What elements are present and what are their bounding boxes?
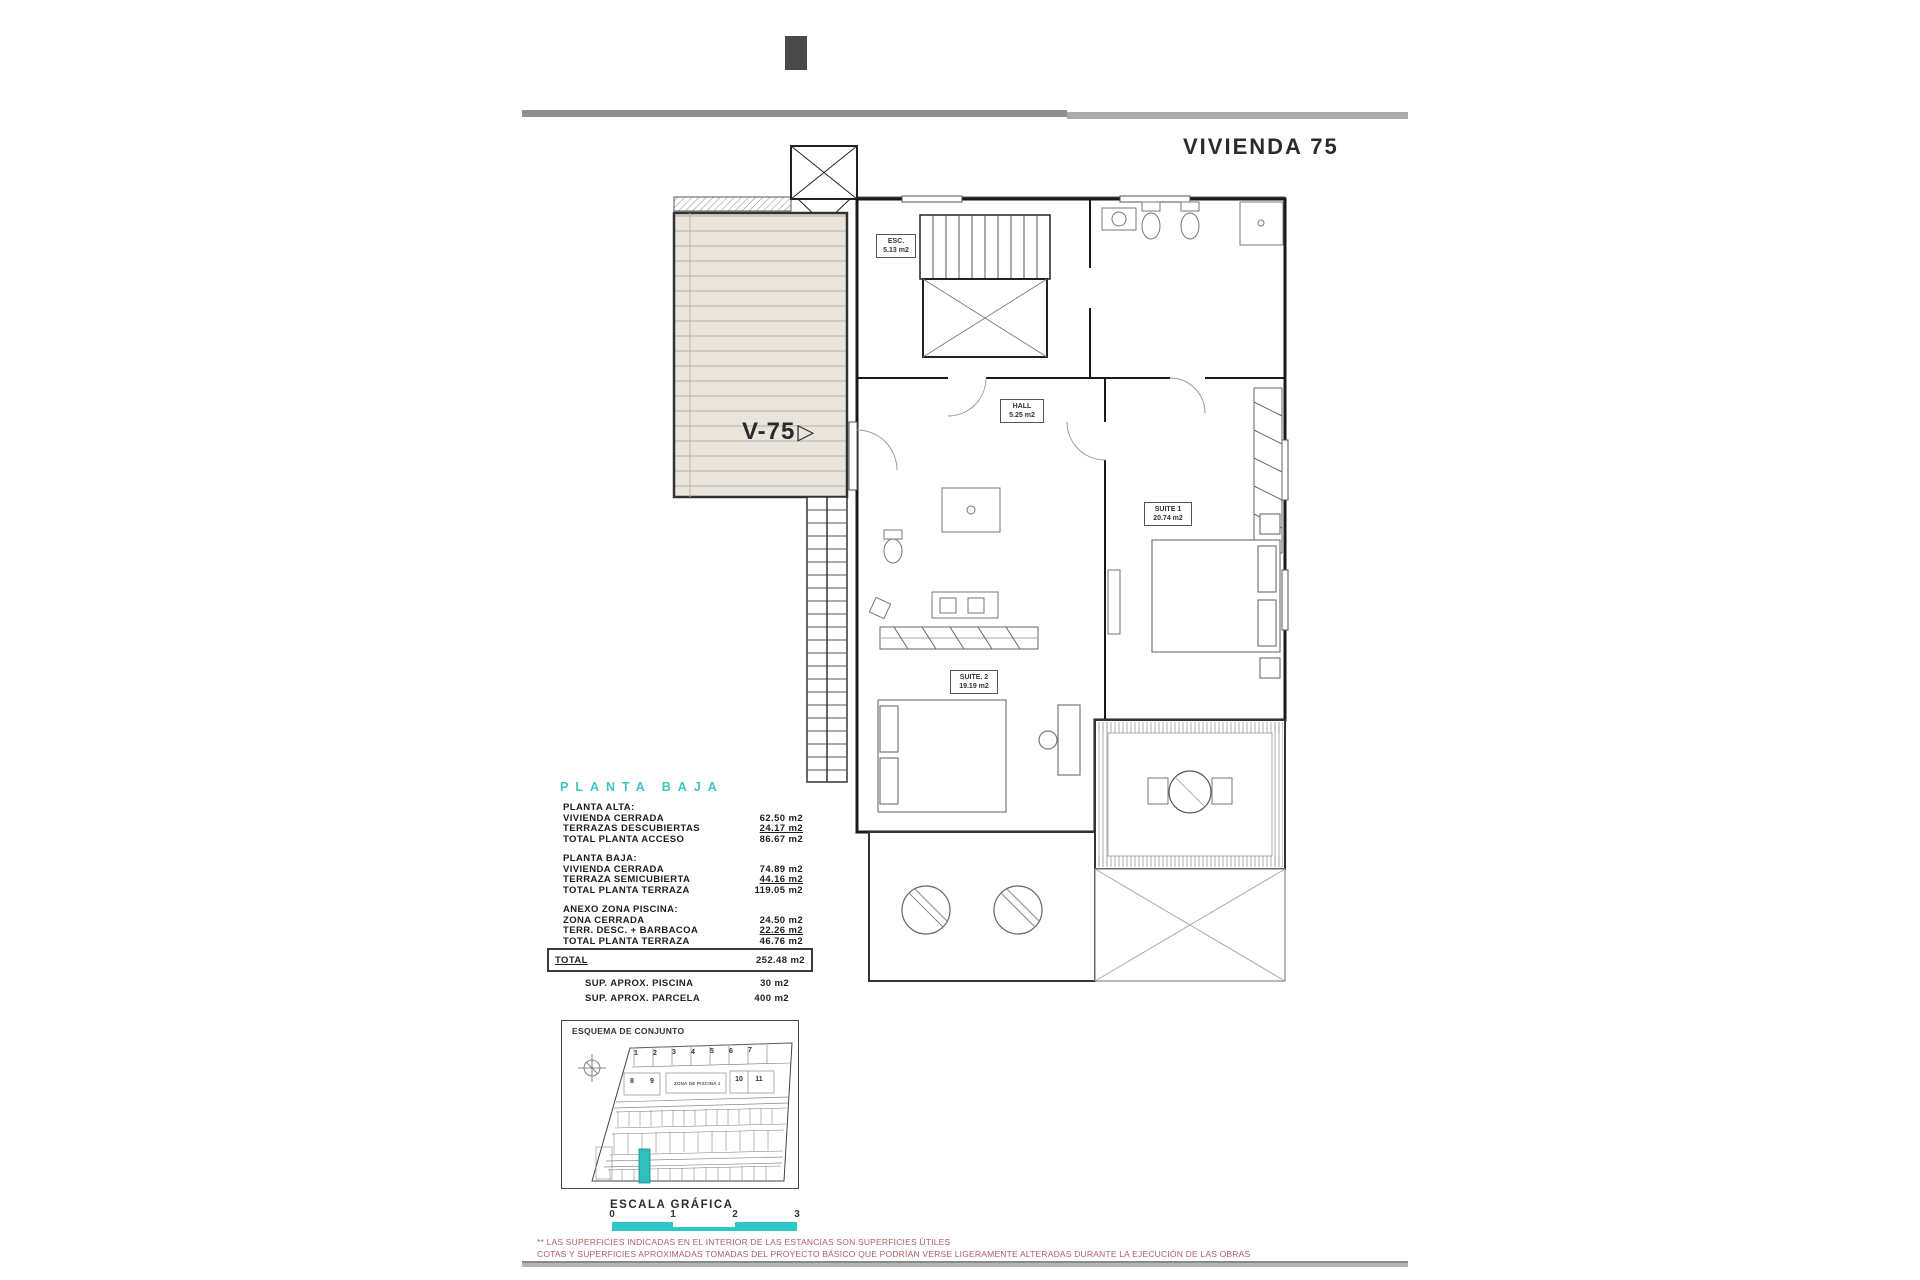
scale-tick: 2 — [732, 1209, 738, 1220]
scale-tick: 1 — [670, 1209, 676, 1220]
table-row: TERRAZAS DESCUBIERTAS24.17 m2 — [563, 824, 803, 835]
site-unit-number: 7 — [748, 1047, 752, 1054]
table-group-anexo-piscina: ANEXO ZONA PISCINA: ZONA CERRADA24.50 m2… — [545, 905, 803, 947]
stair-void — [923, 279, 1047, 357]
covered-terrace — [1095, 720, 1285, 869]
stair-treads — [920, 215, 1050, 279]
exterior-stair — [807, 497, 847, 782]
table-row: TOTAL PLANTA ACCESO86.67 m2 — [563, 835, 803, 846]
site-unit-number: 5 — [710, 1048, 714, 1055]
scale-tick: 3 — [794, 1209, 800, 1220]
drawing-sheet: VIVIENDA 75 — [0, 0, 1920, 1280]
roof-edge-hatch-left — [674, 197, 791, 211]
site-plan-drawing — [562, 1021, 798, 1188]
footnote-superficies: ** LAS SUPERFICIES INDICADAS EN EL INTER… — [537, 1237, 950, 1247]
room-label-suite1: SUITE 1 20.74 m2 — [1144, 502, 1192, 526]
table-row: TOTAL PLANTA TERRAZA46.76 m2 — [563, 937, 803, 948]
highlighted-unit-75 — [639, 1149, 650, 1183]
unit-label: V-75 ▷ — [742, 418, 815, 446]
site-plan-title: ESQUEMA DE CONJUNTO — [572, 1026, 684, 1036]
site-unit-number: 9 — [650, 1078, 654, 1085]
pergola-area — [1095, 869, 1285, 981]
room-label-suite2: SUITE. 2 19.19 m2 — [950, 670, 998, 694]
site-unit-number: 8 — [630, 1078, 634, 1085]
site-unit-number: 4 — [691, 1049, 695, 1056]
scale-bar-segment — [735, 1222, 797, 1231]
total-row: TOTAL 252.48 m2 — [547, 948, 813, 972]
room-label-hall: HALL 5.25 m2 — [1000, 399, 1044, 423]
scale-bar-segment — [673, 1227, 735, 1231]
zone-piscina-label: ZONA DE PISCINA 1 — [674, 1081, 721, 1086]
header-rule-right — [1067, 112, 1408, 119]
room-label-esc: ESC. 5.13 m2 — [876, 234, 916, 258]
table-row: SUP. APROX. PARCELA400 m2 — [585, 991, 789, 1006]
table-heading: PLANTA BAJA — [560, 780, 803, 794]
site-unit-number: 1 — [634, 1050, 638, 1057]
site-unit-number: 2 — [653, 1050, 657, 1057]
table-row: TERRAZA SEMICUBIERTA44.16 m2 — [563, 875, 803, 886]
site-plan: ESQUEMA DE CONJUNTO — [561, 1020, 799, 1189]
scale-tick: 0 — [609, 1209, 615, 1220]
suite2-wardrobe — [880, 627, 1038, 649]
bottom-terrace — [869, 832, 1095, 981]
site-unit-number: 3 — [672, 1049, 676, 1056]
table-row: TOTAL PLANTA TERRAZA119.05 m2 — [563, 886, 803, 897]
header-rule-left — [522, 110, 1067, 117]
terrace-deck — [674, 213, 847, 497]
title-block-mark — [785, 36, 807, 70]
direction-arrow-icon: ▷ — [797, 419, 815, 445]
table-row: SUP. APROX. PISCINA30 m2 — [585, 976, 789, 991]
site-unit-number: 10 — [735, 1076, 743, 1083]
footnote-cotas: COTAS Y SUPERFICIES APROXIMADAS TOMADAS … — [537, 1249, 1250, 1259]
site-unit-number: 11 — [755, 1076, 762, 1083]
footer-rule — [522, 1261, 1408, 1267]
table-group-planta-alta: PLANTA ALTA: VIVIENDA CERRADA62.50 m2 TE… — [545, 803, 803, 845]
area-table: PLANTA BAJA PLANTA ALTA: VIVIENDA CERRAD… — [545, 780, 803, 956]
extra-areas: SUP. APROX. PISCINA30 m2 SUP. APROX. PAR… — [585, 976, 789, 1006]
compass-icon — [578, 1054, 606, 1082]
site-unit-number: 6 — [729, 1048, 733, 1055]
table-row: TERR. DESC. + BARBACOA22.26 m2 — [563, 926, 803, 937]
scale-bar-segment — [612, 1222, 673, 1231]
table-group-planta-baja: PLANTA BAJA: VIVIENDA CERRADA74.89 m2 TE… — [545, 854, 803, 896]
